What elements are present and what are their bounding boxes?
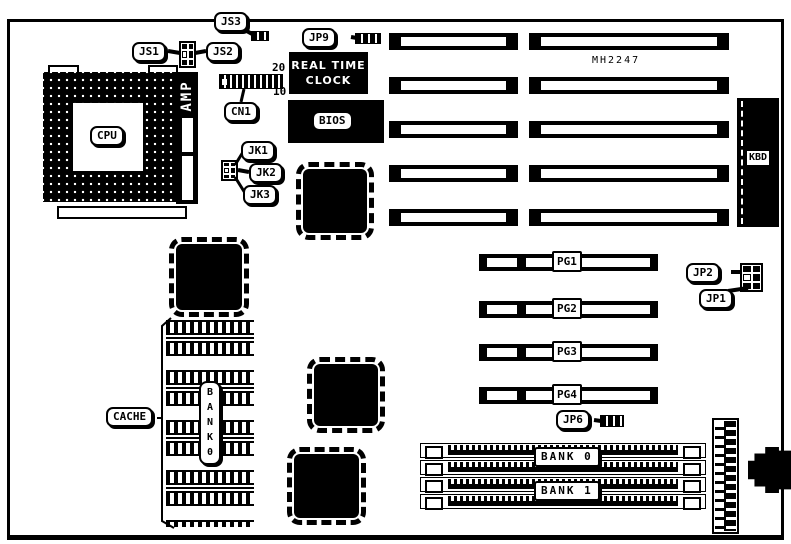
isa-slot-1-right — [529, 33, 729, 50]
jumper-block-js1-js2 — [179, 41, 196, 68]
jumper-label-jk2: JK2 — [249, 163, 283, 183]
cn1-pin10-label: 10 — [273, 85, 286, 98]
power-connector-pins-right — [726, 421, 736, 531]
cpu-label: CPU — [90, 126, 124, 146]
isa-slot-4-left — [389, 165, 518, 182]
isa-slot-4-right — [529, 165, 729, 182]
jumper-label-js3: JS3 — [214, 12, 248, 32]
pg-slot-2-label: PG2 — [552, 298, 582, 319]
isa-slot-3-right — [529, 121, 729, 138]
kbd-pin1-line — [741, 101, 743, 224]
qfp-chip-4 — [294, 454, 359, 518]
jumper-block-jp6 — [600, 415, 624, 427]
isa-slot-2-left — [389, 77, 518, 94]
motherboard-diagram: CPU AMP JS1 JS2 JS3 JP9 REAL TIME CLOCK … — [0, 0, 791, 544]
bios-label: BIOS — [312, 111, 353, 131]
board-part-number: MH2247 — [592, 55, 640, 66]
cache-bank0-vertical-label: B A N K 0 — [199, 381, 221, 465]
cn1-pin20-label: 20 — [272, 61, 285, 74]
amp-slot-lower — [182, 156, 193, 200]
jumper-label-jp6: JP6 — [556, 410, 590, 430]
pg-slot-3-label: PG3 — [552, 341, 582, 362]
jumper-label-jp1: JP1 — [699, 289, 733, 309]
jumper-block-js3 — [251, 31, 269, 41]
rtc-label-line2: CLOCK — [306, 74, 352, 87]
isa-slot-1-left — [389, 33, 518, 50]
jumper-label-js2: JS2 — [206, 42, 240, 62]
jumper-label-js1: JS1 — [132, 42, 166, 62]
cache-label: CACHE — [106, 407, 153, 427]
jumper-label-jk1: JK1 — [241, 141, 275, 161]
qfp-chip-1 — [176, 244, 242, 310]
qfp-chip-3 — [314, 364, 378, 426]
bank1-label: BANK 1 — [534, 481, 600, 501]
jumper-block-jp9 — [355, 33, 381, 44]
isa-slot-5-right — [529, 209, 729, 226]
jumper-label-jp9: JP9 — [302, 28, 336, 48]
bank0-label: BANK 0 — [534, 447, 600, 467]
pg-slot-1-label: PG1 — [552, 251, 582, 272]
jumper-label-jp2: JP2 — [686, 263, 720, 283]
cpu-zif-lever — [57, 206, 187, 219]
amp-label: AMP — [179, 66, 195, 126]
isa-slot-5-left — [389, 209, 518, 226]
jumper-block-jk — [221, 160, 238, 181]
isa-slot-2-right — [529, 77, 729, 94]
rtc-label-line1: REAL TIME — [291, 59, 365, 72]
cn1-label: CN1 — [224, 102, 258, 122]
power-connector-pins-left — [715, 421, 726, 531]
jumper-label-jk3: JK3 — [243, 185, 277, 205]
power-connector — [712, 418, 739, 534]
kbd-label: KBD — [746, 150, 770, 166]
jumper-block-jp1-jp2 — [740, 263, 763, 292]
keyboard-din-connector — [748, 447, 791, 493]
real-time-clock-chip: REAL TIME CLOCK — [289, 52, 368, 94]
qfp-chip-2 — [303, 169, 367, 233]
isa-slot-3-left — [389, 121, 518, 138]
pg-slot-4-label: PG4 — [552, 384, 582, 405]
